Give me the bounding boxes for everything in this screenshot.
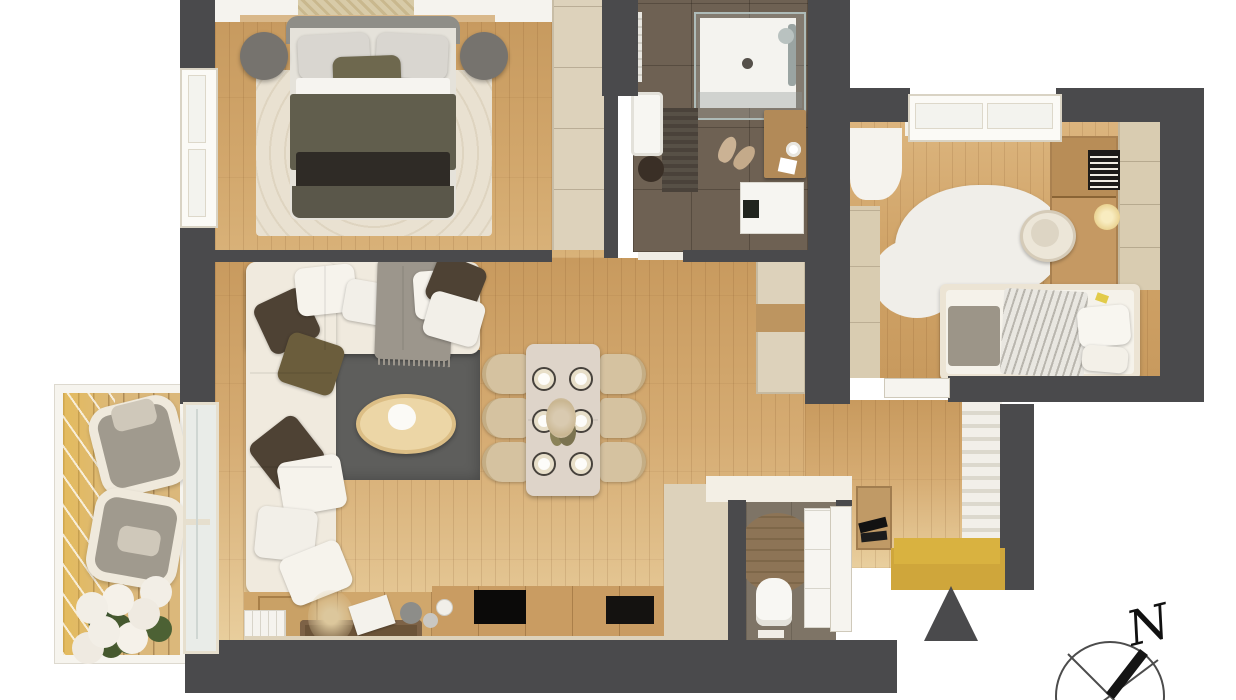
wc-cabinet xyxy=(804,508,832,628)
decor-vase xyxy=(436,599,453,616)
nightstand-right xyxy=(460,32,508,80)
dining-chair xyxy=(482,442,528,482)
entrance-doormat xyxy=(894,538,1000,564)
bedroom-window xyxy=(180,68,218,228)
bed-foot-blanket xyxy=(292,186,454,218)
wall-left-upper xyxy=(180,0,215,70)
kids-closet xyxy=(848,206,880,378)
place-setting xyxy=(532,452,556,476)
media-niche xyxy=(606,596,654,624)
place-setting xyxy=(569,452,593,476)
wc-door xyxy=(830,506,852,632)
kids-bed-striped-blanket xyxy=(1000,288,1088,378)
knit-runner xyxy=(962,396,1002,554)
sofa-seam xyxy=(402,266,404,350)
wc-wall-left xyxy=(728,500,746,646)
kids-bed-pillow xyxy=(1076,304,1131,348)
dining-chair xyxy=(600,354,646,394)
wall-kids-north-right xyxy=(1056,88,1162,122)
sofa-seam xyxy=(324,266,326,350)
wall-kids-east xyxy=(1160,88,1204,402)
shower-glass-edge xyxy=(698,92,802,108)
coffee-table-decor xyxy=(388,404,416,430)
hydrangea-leaves xyxy=(106,614,132,640)
wc-outer-wall-north xyxy=(706,476,852,502)
bathroom-stool xyxy=(638,156,664,182)
wc-toilet xyxy=(756,578,792,626)
kids-bed-pillow-small xyxy=(1081,344,1129,374)
wall-bedroom-bathroom-upper xyxy=(602,0,638,96)
desk-chair-seat xyxy=(1031,219,1059,247)
dining-chair xyxy=(600,398,646,438)
kids-wardrobe xyxy=(1118,116,1164,290)
window-pane xyxy=(188,149,206,217)
kids-curtain xyxy=(850,128,902,200)
sliding-door-mullion xyxy=(186,519,210,525)
flower-centerpiece xyxy=(546,398,576,438)
sofa-seam xyxy=(250,372,332,374)
sofa-throw-fringe xyxy=(378,351,452,368)
window-pane xyxy=(987,103,1053,129)
kids-room-door xyxy=(884,378,950,398)
wall-hallway-east xyxy=(1000,404,1034,590)
toilet-paper-roll xyxy=(786,142,801,157)
wall-bedroom-south xyxy=(215,250,552,262)
bathroom-sink xyxy=(631,92,663,156)
shower-drain xyxy=(742,58,753,69)
dining-chair xyxy=(482,398,528,438)
wall-bedroom-bathroom-lower xyxy=(604,96,618,258)
compass-north-label: N xyxy=(1120,596,1177,658)
place-setting xyxy=(532,367,556,391)
wall-living-kids xyxy=(805,254,850,404)
shower-head xyxy=(778,28,794,44)
bath-rug xyxy=(662,108,698,192)
pegboard xyxy=(1088,150,1120,190)
entrance-arrow-marker xyxy=(924,586,978,641)
bathroom-door-opening xyxy=(638,252,683,260)
decor-vase xyxy=(423,613,438,628)
kids-room-window xyxy=(908,94,1062,142)
place-setting xyxy=(569,367,593,391)
desk-lamp xyxy=(1094,204,1120,230)
sofa-seam xyxy=(250,466,332,468)
wall-bathroom-right xyxy=(808,0,850,258)
nightstand-left xyxy=(240,32,288,80)
dining-chair xyxy=(600,442,646,482)
window-pane xyxy=(915,103,983,129)
wall-kids-south-mid xyxy=(948,376,1032,402)
balcony-sliding-door xyxy=(183,402,219,654)
wall-south-main xyxy=(185,640,897,693)
hydrangea-flowers xyxy=(76,592,108,624)
compass-rose: N xyxy=(1040,596,1236,700)
media-niche xyxy=(474,590,526,624)
washing-machine-detail xyxy=(743,200,759,218)
wall-bathroom-south xyxy=(683,250,808,262)
floor-plan: N xyxy=(0,0,1236,700)
wc-outer-wall-west xyxy=(664,484,730,664)
wc-toilet-mat xyxy=(758,630,784,638)
decor-vase xyxy=(400,602,422,624)
bedroom-wall-art-rug xyxy=(298,0,414,16)
window-pane xyxy=(188,75,206,143)
living-cabinet-niche xyxy=(756,304,806,332)
wall-left-mid xyxy=(180,222,215,404)
wall-kids-north-left xyxy=(846,88,910,122)
sliding-door-glass-line xyxy=(196,409,198,639)
kids-bed-headcushion xyxy=(948,306,1000,366)
bedroom-wardrobe xyxy=(552,0,606,250)
dining-chair xyxy=(482,354,528,394)
wall-kids-south-right xyxy=(1030,376,1204,402)
